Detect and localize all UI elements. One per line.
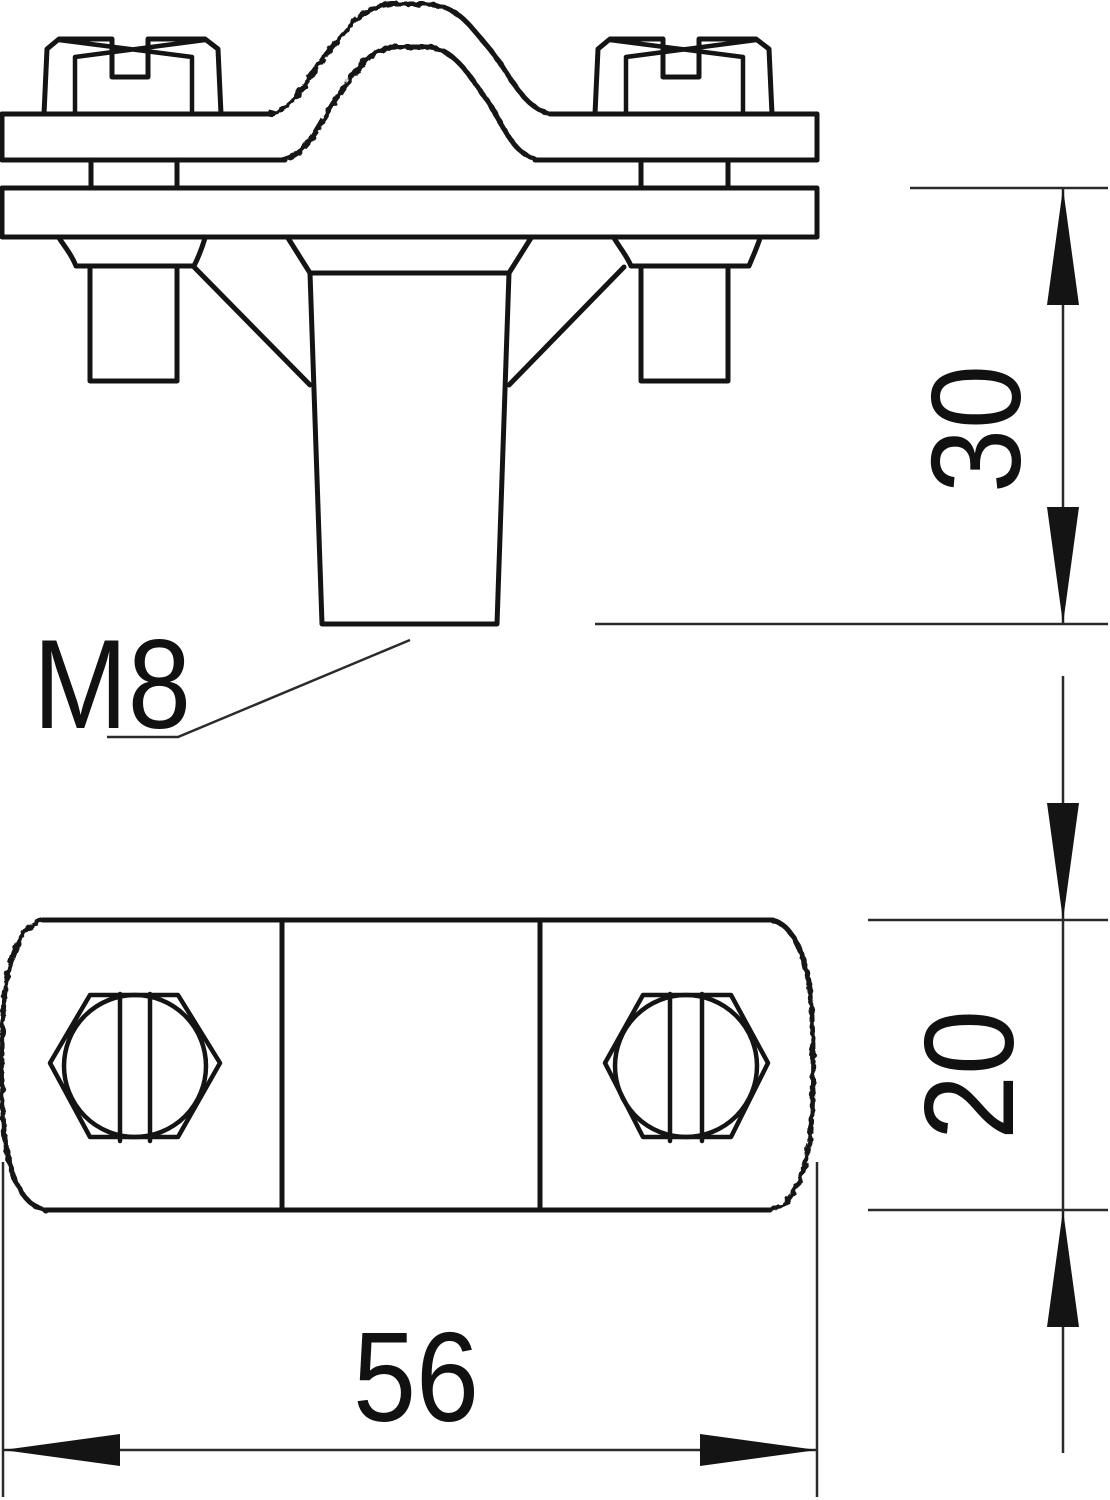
left-hex-outline bbox=[50, 995, 220, 1137]
drawing-canvas: 30 20 56 M8 bbox=[0, 0, 1110, 1500]
dim-20: 20 bbox=[868, 676, 1108, 1453]
saddle-arch-inner-knurled bbox=[285, 47, 535, 159]
right-screw-circle bbox=[615, 995, 757, 1137]
body-left-knurled-edge bbox=[2, 920, 45, 1210]
left-screw-slot bbox=[120, 994, 150, 1141]
left-screw-head bbox=[44, 39, 221, 114]
left-shank-section bbox=[91, 160, 177, 188]
right-screw-shaft bbox=[614, 238, 760, 381]
dim-56-label: 56 bbox=[353, 1306, 479, 1448]
lower-plate bbox=[2, 188, 817, 237]
dim-56-arrow-left bbox=[3, 1434, 120, 1466]
right-screw-head bbox=[595, 39, 772, 114]
body-right-knurled-edge bbox=[770, 920, 813, 1210]
left-screw-shaft bbox=[59, 238, 205, 381]
left-hex-screw bbox=[50, 994, 220, 1141]
dim-30-arrow-down bbox=[1047, 507, 1079, 624]
left-screw-circle bbox=[64, 995, 206, 1137]
dim-20-arrow-up bbox=[1047, 1210, 1079, 1327]
dim-20-arrow-down bbox=[1047, 803, 1079, 920]
funnel-web-left bbox=[194, 267, 310, 385]
left-boss bbox=[59, 238, 205, 266]
funnel-web-right bbox=[509, 267, 624, 385]
stud-body bbox=[310, 273, 509, 624]
technical-drawing-page: 30 20 56 M8 bbox=[0, 0, 1110, 1500]
dim-30-label: 30 bbox=[905, 365, 1047, 493]
dimensions: 30 20 56 M8 bbox=[3, 188, 1108, 1497]
stud-flange-chamfers bbox=[288, 238, 531, 273]
right-hex-outline bbox=[605, 995, 768, 1137]
right-boss bbox=[614, 238, 760, 266]
central-stud bbox=[194, 238, 624, 624]
saddle-arch-outer-knurled bbox=[270, 4, 550, 114]
dim-20-label: 20 bbox=[898, 1010, 1040, 1140]
thread-callout: M8 bbox=[33, 613, 410, 755]
front-view bbox=[2, 4, 817, 624]
right-screw-slot bbox=[670, 994, 702, 1141]
dim-30-arrow-up bbox=[1047, 188, 1079, 305]
right-shaft bbox=[641, 266, 728, 381]
dim-56-arrow-right bbox=[700, 1434, 817, 1466]
thread-label: M8 bbox=[33, 613, 191, 755]
right-hex-screw bbox=[605, 994, 768, 1141]
plan-view bbox=[2, 920, 814, 1210]
right-shank-section bbox=[641, 160, 728, 188]
left-shaft bbox=[90, 266, 177, 381]
dim-30: 30 bbox=[595, 188, 1108, 624]
